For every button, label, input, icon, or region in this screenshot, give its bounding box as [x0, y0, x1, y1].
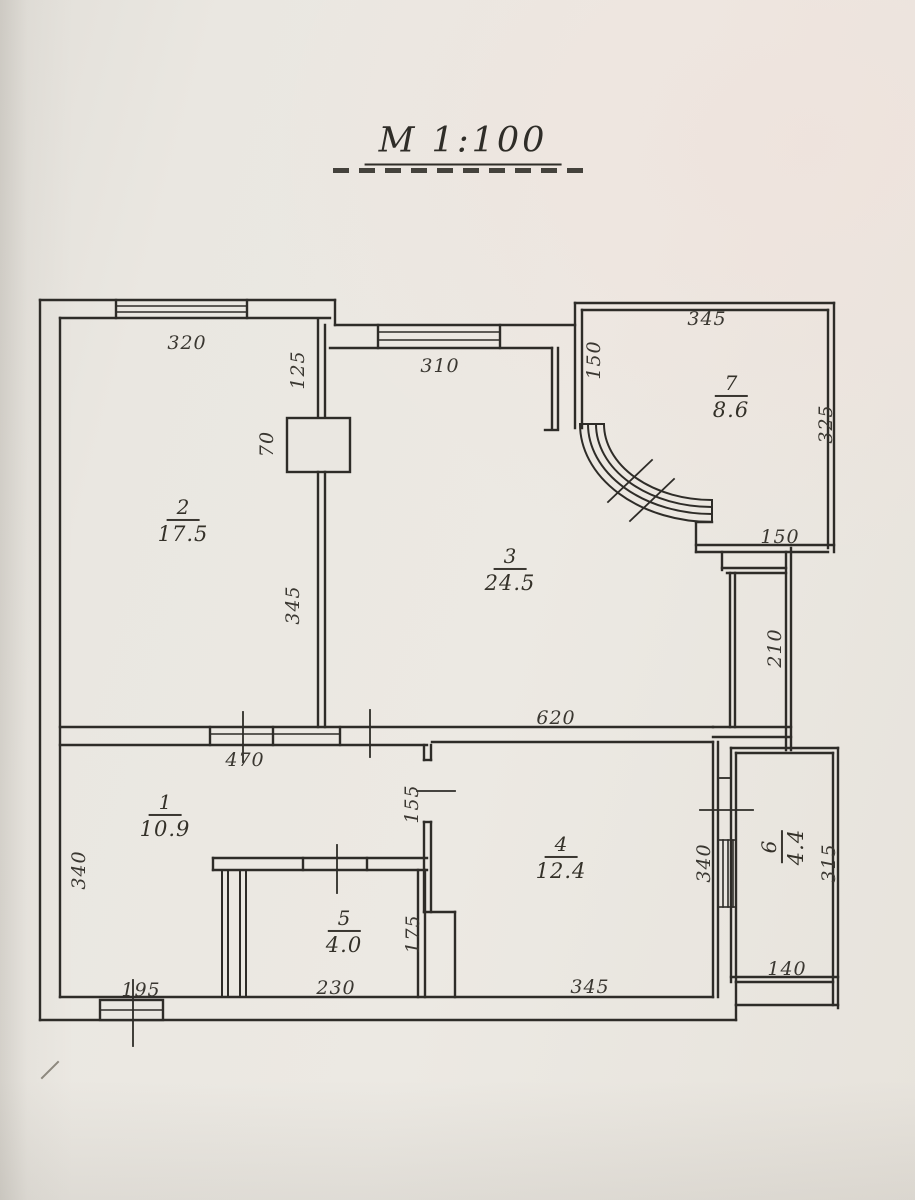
mid-horizontal-wall [60, 727, 791, 745]
shaft-hatch [718, 840, 736, 907]
window-bottom-left [100, 1000, 163, 1020]
floor-plan: 1 10.9 2 17.5 3 24.5 4 12.4 5 4.0 6 4.4 … [0, 0, 915, 1200]
room-label-3: 3 24.5 [485, 546, 536, 594]
dim-room5-right: 175 [402, 914, 424, 953]
floor-plan-drawing [0, 0, 915, 1200]
stray-mark [42, 1062, 58, 1078]
room3-right-stub [545, 348, 558, 430]
dim-room6-bottom: 140 [767, 958, 806, 980]
outer-walls [40, 300, 736, 1020]
dim-wall23-upper: 125 [287, 350, 309, 389]
dim-room2-top: 320 [167, 332, 206, 354]
room-label-6: 6 4.4 [759, 829, 807, 865]
room-label-4: 4 12.4 [536, 834, 587, 882]
room-label-2: 2 17.5 [158, 497, 209, 545]
dim-room1-bottom: 195 [121, 979, 160, 1001]
dim-room1-top: 470 [225, 749, 264, 771]
dim-room3-top: 310 [420, 355, 459, 377]
room5-walls [213, 845, 427, 997]
dim-room7-top: 345 [687, 308, 726, 330]
curved-wall [580, 424, 712, 522]
dim-room7-left: 150 [583, 340, 605, 379]
dim-room14-door: 155 [401, 784, 423, 823]
dim-room6-right: 315 [818, 843, 840, 882]
room-label-7: 7 8.6 [713, 373, 749, 421]
dim-room4-right: 340 [693, 843, 715, 882]
scanned-floor-plan-photo: M 1:100 [0, 0, 915, 1200]
dim-room4-bottom: 345 [570, 976, 609, 998]
dim-room1-left: 340 [68, 850, 90, 889]
dim-room3-bottom: 620 [536, 707, 575, 729]
window-room2-top [116, 300, 247, 318]
dim-room5-bottom: 230 [316, 977, 355, 999]
dim-room7-right: 325 [815, 404, 837, 443]
window-room3-top [378, 325, 500, 348]
dim-room7-bottom: 150 [760, 526, 799, 548]
room-label-1: 1 10.9 [140, 792, 191, 840]
dim-wall23-pillar: 70 [256, 431, 278, 457]
dim-right-wall: 210 [764, 628, 786, 667]
dim-wall23-lower: 345 [282, 585, 304, 624]
room-label-5: 5 4.0 [326, 908, 362, 956]
